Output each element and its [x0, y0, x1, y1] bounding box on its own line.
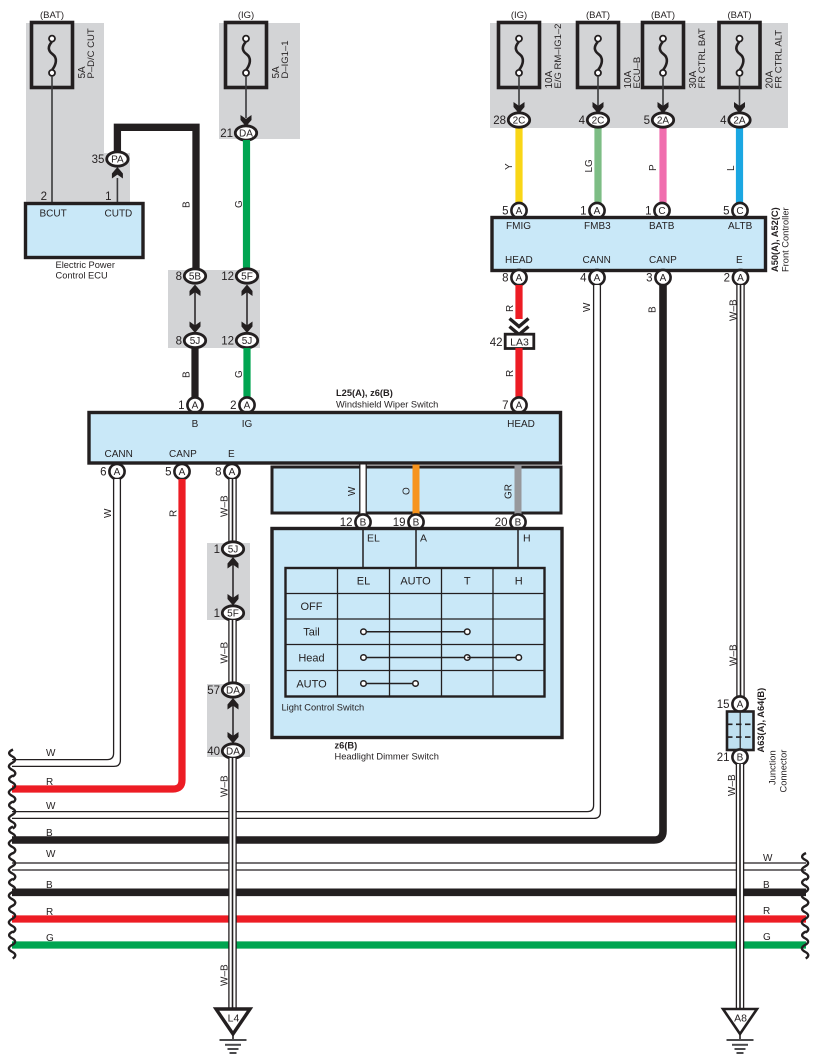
svg-text:G: G	[234, 200, 245, 208]
svg-text:15: 15	[717, 699, 730, 711]
svg-text:W: W	[347, 486, 358, 496]
svg-text:1: 1	[178, 400, 184, 412]
svg-text:R: R	[169, 510, 180, 517]
svg-text:A: A	[516, 273, 523, 284]
svg-text:CANP: CANP	[169, 449, 197, 460]
svg-text:5F: 5F	[227, 609, 239, 620]
svg-text:2A: 2A	[733, 116, 746, 127]
svg-text:BCUT: BCUT	[40, 209, 67, 220]
svg-text:A: A	[192, 401, 199, 412]
svg-text:B: B	[192, 419, 199, 430]
svg-text:6: 6	[100, 466, 106, 478]
svg-text:3: 3	[646, 272, 652, 284]
svg-text:R: R	[505, 370, 516, 377]
svg-text:8: 8	[176, 335, 182, 347]
svg-text:1: 1	[645, 205, 651, 217]
svg-text:4: 4	[580, 272, 587, 284]
svg-text:A: A	[737, 700, 744, 711]
svg-text:W: W	[46, 748, 56, 759]
svg-text:57: 57	[207, 685, 220, 697]
svg-text:35: 35	[92, 154, 105, 166]
svg-text:W–B: W–B	[729, 299, 740, 321]
svg-text:A: A	[737, 273, 744, 284]
svg-text:W–B: W–B	[220, 642, 231, 664]
svg-text:LG: LG	[584, 159, 595, 173]
svg-text:5: 5	[165, 466, 171, 478]
svg-text:R: R	[763, 906, 770, 917]
svg-text:G: G	[46, 933, 54, 944]
svg-text:7: 7	[502, 400, 508, 412]
svg-text:A: A	[660, 273, 667, 284]
svg-text:A: A	[229, 467, 236, 478]
svg-text:A8: A8	[734, 1013, 747, 1025]
svg-text:1: 1	[105, 191, 111, 203]
svg-text:AUTO: AUTO	[400, 576, 431, 588]
svg-text:8: 8	[176, 271, 182, 283]
svg-text:Electric Power: Electric Power	[56, 260, 115, 270]
svg-text:A: A	[594, 206, 601, 217]
svg-text:2: 2	[724, 272, 730, 284]
svg-text:B: B	[182, 201, 193, 208]
svg-text:W–B: W–B	[220, 964, 231, 986]
svg-text:5B: 5B	[189, 272, 202, 283]
svg-text:28: 28	[493, 115, 506, 127]
svg-text:z6(B): z6(B)	[335, 741, 358, 751]
svg-text:Junction: Junction	[768, 750, 778, 785]
svg-text:W–B: W–B	[220, 495, 231, 517]
svg-text:R: R	[46, 777, 53, 788]
svg-text:FR CTRL ALT: FR CTRL ALT	[774, 30, 785, 89]
svg-text:21: 21	[717, 752, 730, 764]
svg-text:R: R	[46, 907, 53, 918]
svg-text:DA: DA	[226, 747, 240, 758]
svg-text:2: 2	[41, 191, 47, 203]
svg-text:T: T	[464, 576, 471, 588]
svg-text:L25(A), z6(B): L25(A), z6(B)	[336, 388, 393, 398]
svg-text:W: W	[46, 801, 56, 812]
svg-text:PA: PA	[111, 155, 124, 166]
svg-text:L: L	[726, 165, 737, 171]
svg-text:A: A	[594, 273, 601, 284]
svg-text:A: A	[420, 533, 427, 545]
svg-text:W: W	[763, 853, 773, 864]
svg-text:42: 42	[490, 337, 503, 349]
svg-text:G: G	[763, 932, 771, 943]
svg-text:H: H	[515, 576, 523, 588]
svg-text:B: B	[763, 880, 770, 891]
svg-text:(IG): (IG)	[511, 10, 527, 21]
svg-text:R: R	[505, 305, 516, 312]
svg-text:Light Control Switch: Light Control Switch	[282, 703, 365, 713]
svg-text:5J: 5J	[242, 336, 253, 347]
svg-text:Y: Y	[504, 163, 515, 170]
svg-text:O: O	[402, 487, 413, 495]
svg-text:D–IG1–1: D–IG1–1	[280, 40, 291, 78]
svg-text:2: 2	[230, 400, 236, 412]
svg-text:P: P	[648, 164, 659, 171]
svg-text:4: 4	[579, 115, 586, 127]
svg-text:5F: 5F	[241, 272, 253, 283]
svg-text:HEAD: HEAD	[505, 255, 533, 266]
svg-text:H: H	[523, 533, 531, 545]
svg-text:1: 1	[580, 205, 586, 217]
svg-text:(BAT): (BAT)	[651, 10, 675, 21]
svg-text:DA: DA	[239, 129, 253, 140]
svg-text:(BAT): (BAT)	[40, 10, 64, 21]
svg-text:L4: L4	[228, 1013, 240, 1025]
svg-text:C: C	[736, 206, 743, 217]
svg-text:8: 8	[215, 466, 221, 478]
svg-text:21: 21	[220, 128, 233, 140]
svg-text:FMIG: FMIG	[506, 221, 531, 232]
svg-text:(BAT): (BAT)	[727, 10, 751, 21]
svg-text:A: A	[179, 467, 186, 478]
svg-text:5: 5	[644, 115, 650, 127]
svg-text:W–B: W–B	[729, 644, 740, 666]
svg-text:CANP: CANP	[649, 255, 677, 266]
svg-text:E: E	[736, 255, 743, 266]
svg-text:BATB: BATB	[649, 221, 675, 232]
svg-text:5J: 5J	[190, 336, 201, 347]
svg-text:W: W	[103, 508, 114, 518]
svg-text:E: E	[228, 449, 235, 460]
svg-text:A: A	[516, 206, 523, 217]
svg-text:GR: GR	[504, 484, 515, 499]
svg-text:(IG): (IG)	[238, 10, 254, 21]
svg-text:1: 1	[214, 608, 220, 620]
svg-text:W–B: W–B	[727, 774, 738, 796]
svg-text:12: 12	[221, 271, 234, 283]
svg-text:G: G	[234, 370, 245, 378]
svg-text:A: A	[114, 467, 121, 478]
svg-text:LA3: LA3	[510, 336, 529, 348]
svg-text:Control ECU: Control ECU	[56, 271, 108, 281]
svg-text:40: 40	[207, 746, 220, 758]
svg-text:B: B	[46, 880, 53, 891]
svg-text:FMB3: FMB3	[584, 221, 611, 232]
svg-text:CANN: CANN	[105, 449, 133, 460]
svg-text:C: C	[658, 206, 665, 217]
svg-text:Connector: Connector	[779, 750, 789, 793]
svg-text:Windshield Wiper Switch: Windshield Wiper Switch	[336, 400, 438, 410]
svg-text:B: B	[648, 306, 659, 313]
svg-text:2A: 2A	[657, 116, 670, 127]
svg-text:A63(A), A64(B): A63(A), A64(B)	[756, 688, 766, 753]
svg-text:OFF: OFF	[301, 601, 323, 613]
svg-text:W–B: W–B	[220, 775, 231, 797]
svg-text:5: 5	[502, 205, 508, 217]
svg-text:DA: DA	[226, 686, 240, 697]
svg-text:A50(A), A52(C): A50(A), A52(C)	[770, 207, 780, 272]
svg-text:2C: 2C	[592, 116, 605, 127]
svg-text:Tail: Tail	[303, 627, 320, 639]
svg-text:5J: 5J	[228, 545, 239, 556]
svg-text:Headlight Dimmer Switch: Headlight Dimmer Switch	[335, 752, 439, 762]
svg-text:EL: EL	[367, 533, 380, 545]
svg-text:B: B	[737, 753, 744, 764]
svg-text:B: B	[46, 828, 53, 839]
svg-text:4: 4	[720, 115, 727, 127]
svg-text:IG: IG	[242, 419, 253, 430]
svg-text:HEAD: HEAD	[507, 419, 535, 430]
svg-text:E/G RM–IG1–2: E/G RM–IG1–2	[553, 24, 564, 89]
svg-text:CUTD: CUTD	[105, 209, 133, 220]
svg-text:12: 12	[221, 335, 234, 347]
svg-text:EL: EL	[357, 576, 370, 588]
svg-text:P–D/C CUT: P–D/C CUT	[86, 28, 97, 78]
svg-text:B: B	[182, 371, 193, 378]
svg-text:CANN: CANN	[583, 255, 611, 266]
svg-text:FR CTRL BAT: FR CTRL BAT	[697, 28, 708, 88]
svg-text:Head: Head	[298, 652, 324, 664]
svg-text:W: W	[46, 849, 56, 860]
svg-text:Front Controller: Front Controller	[781, 207, 791, 272]
svg-text:(BAT): (BAT)	[586, 10, 610, 21]
svg-text:8: 8	[502, 272, 508, 284]
svg-text:1: 1	[214, 544, 220, 556]
svg-text:W: W	[582, 302, 593, 312]
svg-text:A: A	[516, 401, 523, 412]
svg-text:A: A	[244, 401, 251, 412]
svg-text:AUTO: AUTO	[296, 678, 327, 690]
svg-text:5: 5	[723, 205, 729, 217]
svg-text:2C: 2C	[513, 116, 526, 127]
svg-text:ALTB: ALTB	[728, 221, 753, 232]
